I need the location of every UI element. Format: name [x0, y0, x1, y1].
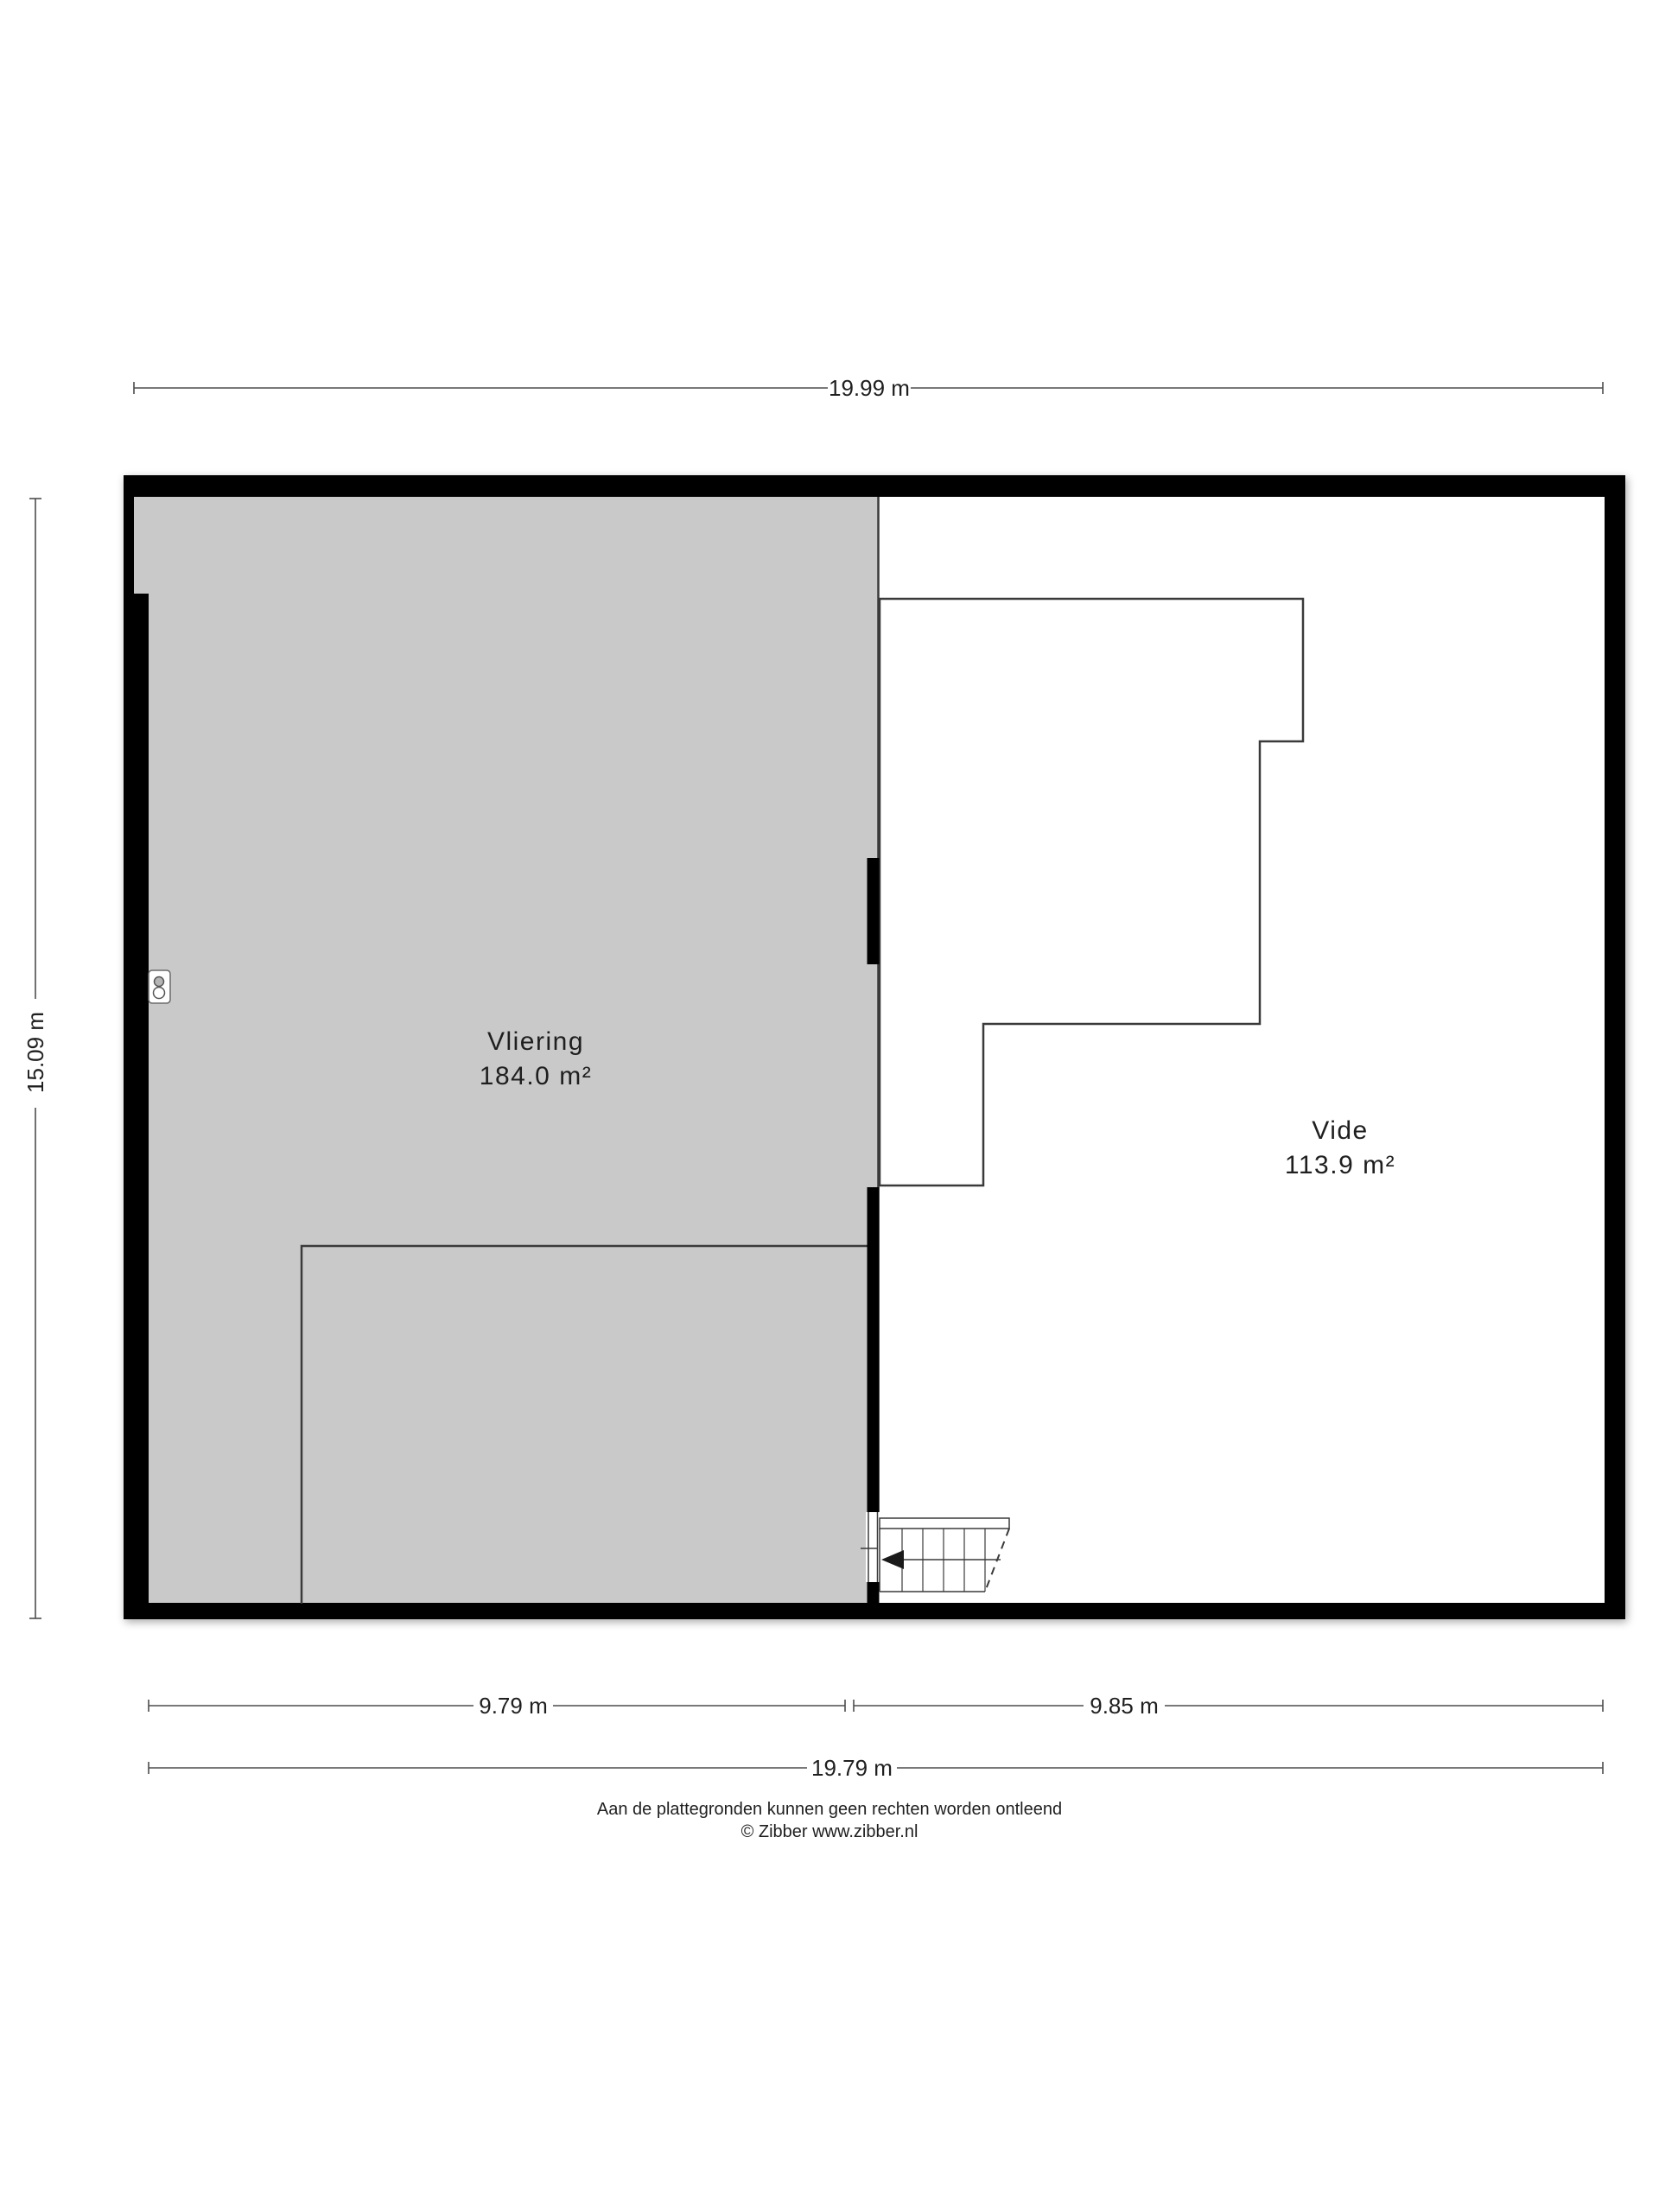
room-name-vliering: Vliering: [487, 1027, 584, 1056]
dimension-bottom-left: 9.79 m: [149, 1693, 845, 1719]
floor-plan-svg: Vliering 184.0 m² Vide 113.9 m² 19.99 m …: [0, 0, 1659, 2212]
dimension-top-value: 19.99 m: [829, 375, 910, 401]
dimension-bottom-total: 19.79 m: [149, 1755, 1603, 1781]
footer-disclaimer: Aan de plattegronden kunnen geen rechten…: [597, 1800, 1062, 1819]
dimension-left-value: 15.09 m: [22, 1012, 48, 1093]
divider-wall-segment-lower: [868, 1187, 880, 1512]
footer-copyright: © Zibber www.zibber.nl: [741, 1822, 918, 1841]
room-area-vliering: 184.0 m²: [480, 1062, 592, 1090]
dimension-left: 15.09 m: [22, 499, 48, 1618]
footer: Aan de plattegronden kunnen geen rechten…: [597, 1800, 1062, 1841]
dimension-bottom-right-value: 9.85 m: [1090, 1693, 1159, 1719]
dimension-bottom-total-value: 19.79 m: [811, 1755, 893, 1781]
dimension-bottom-left-value: 9.79 m: [479, 1693, 548, 1719]
floor-plan-page: Vliering 184.0 m² Vide 113.9 m² 19.99 m …: [0, 0, 1659, 2212]
stairs: [880, 1518, 1009, 1592]
dimension-bottom-right: 9.85 m: [854, 1693, 1603, 1719]
building: [124, 475, 1625, 1619]
divider-wall-segment-upper: [868, 858, 880, 964]
ventilation-unit-icon: [149, 970, 170, 1003]
room-area-vide: 113.9 m²: [1285, 1151, 1395, 1179]
room-name-vide: Vide: [1312, 1116, 1369, 1145]
dimension-top: 19.99 m: [134, 375, 1603, 401]
divider-wall-stub: [868, 1582, 880, 1607]
